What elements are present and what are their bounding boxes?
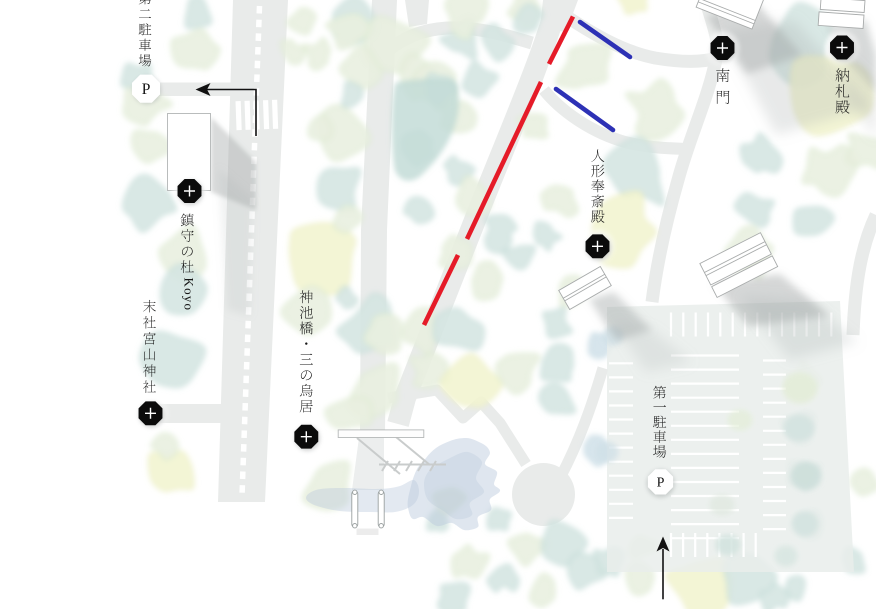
svg-text:P: P <box>142 81 151 98</box>
svg-text:P: P <box>657 476 665 491</box>
svg-text:Koyo: Koyo <box>182 278 197 312</box>
